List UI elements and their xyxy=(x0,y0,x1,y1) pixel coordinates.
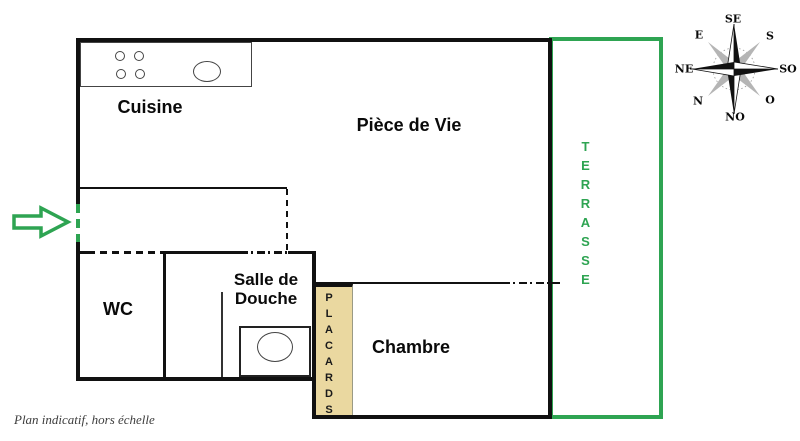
compass-label-no: NO xyxy=(725,111,745,124)
hob-burner xyxy=(135,69,145,79)
partition-solid-shower xyxy=(163,251,240,254)
room-label-salle-de-douche: Salle de Douche xyxy=(226,270,306,308)
compass-rose: SE E S NE SO N O NO xyxy=(668,6,800,126)
hall-dashed-vertical xyxy=(286,189,288,251)
compass-label-so: SO xyxy=(779,63,797,76)
compass-label-ne: NE xyxy=(675,63,693,76)
partition-dashdot xyxy=(240,251,288,254)
entrance-arrow-icon xyxy=(10,203,72,241)
chambre-top-dashdot xyxy=(502,282,548,284)
hob-burner xyxy=(115,51,125,61)
hob-burner xyxy=(134,51,144,61)
kitchen-counter xyxy=(80,42,252,87)
partition-stub-right xyxy=(288,251,316,254)
room-label-placards: PLACARDS xyxy=(323,292,335,414)
wall-left-lower xyxy=(76,240,80,381)
hall-top-line xyxy=(78,187,287,189)
shower-partition-line xyxy=(221,292,223,377)
kitchen-sink xyxy=(193,61,221,82)
room-label-wc: WC xyxy=(88,299,148,320)
wall-wc-divider xyxy=(163,252,166,377)
floor-plan: Cuisine Pièce de Vie WC Salle de Douche … xyxy=(0,0,800,441)
terrasse-area xyxy=(549,37,663,419)
partition-stub-left xyxy=(80,251,88,254)
room-label-piece-de-vie: Pièce de Vie xyxy=(339,115,479,136)
salle-de-douche-line1: Salle de xyxy=(226,270,306,289)
compass-label-s: S xyxy=(766,30,774,43)
room-label-terrasse: TERRASSE xyxy=(578,139,593,264)
compass-label-e: E xyxy=(695,29,703,42)
terrace-wall-tick xyxy=(552,282,560,284)
compass-label-se: SE xyxy=(725,13,741,26)
wall-right xyxy=(548,38,552,419)
partition-dashed-wc xyxy=(88,251,163,254)
wall-bottom-east xyxy=(312,415,552,419)
compass-label-o: O xyxy=(765,94,775,107)
shower-drain xyxy=(257,332,293,362)
salle-de-douche-line2: Douche xyxy=(226,289,306,308)
entrance-door-dashes xyxy=(76,204,80,242)
room-label-chambre: Chambre xyxy=(351,337,471,358)
compass-label-n: N xyxy=(693,95,703,108)
plan-caption: Plan indicatif, hors échelle xyxy=(14,412,155,428)
hob-burner xyxy=(116,69,126,79)
room-label-cuisine: Cuisine xyxy=(110,97,190,118)
wall-bottom-west xyxy=(76,377,316,381)
